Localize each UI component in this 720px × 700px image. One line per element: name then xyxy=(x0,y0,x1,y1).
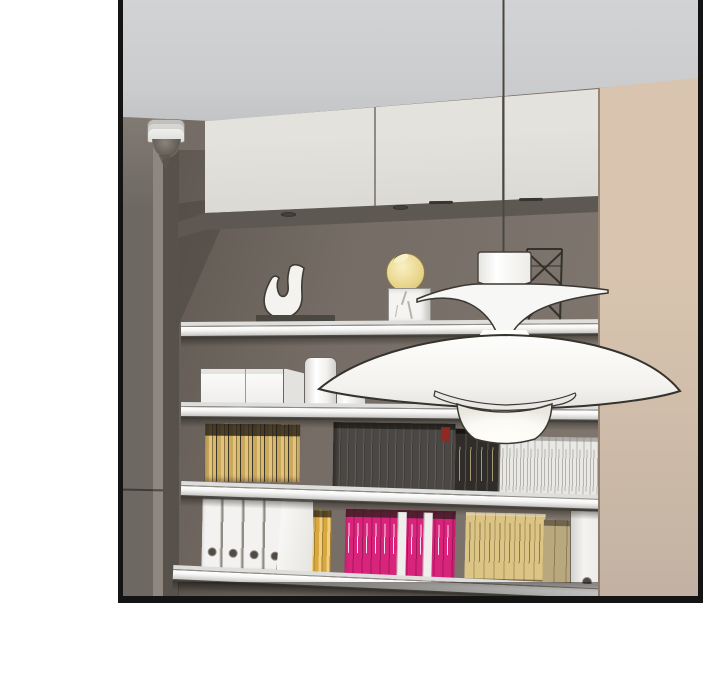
marble-vein xyxy=(401,291,407,305)
box-divider xyxy=(245,369,246,404)
left-wall-panel xyxy=(123,100,153,596)
spine-text xyxy=(465,522,546,564)
marble-cube xyxy=(388,288,431,324)
marble-vein xyxy=(395,305,398,317)
cabinet-handle xyxy=(519,198,543,201)
shelf-1 xyxy=(181,319,600,339)
white-canister xyxy=(304,357,337,405)
recessed-light xyxy=(393,205,408,210)
cabinet-door-seam xyxy=(502,96,504,202)
binder-hole xyxy=(229,549,238,558)
spine-text xyxy=(455,447,500,482)
binder-hole xyxy=(250,550,259,559)
binder-hole xyxy=(208,547,217,556)
beige-side-panel xyxy=(598,0,698,596)
comic-panel-image[interactable] xyxy=(118,0,703,603)
webtoon-page xyxy=(0,0,720,700)
marble-vein xyxy=(407,301,412,319)
white-spine xyxy=(422,513,433,586)
floor-shadow xyxy=(178,582,598,596)
spine-text xyxy=(500,448,601,492)
camera-shadow xyxy=(157,155,173,171)
left-wall-edge-highlight xyxy=(153,104,163,596)
cabinet-door-seam xyxy=(374,106,376,207)
recessed-light xyxy=(281,212,296,217)
shelf-2 xyxy=(181,402,600,423)
white-spine xyxy=(396,512,407,585)
cabinet-handle xyxy=(429,201,453,204)
left-wall-reveal xyxy=(163,108,179,596)
books-gold-thin xyxy=(205,424,301,483)
storage-box xyxy=(200,368,286,405)
security-camera xyxy=(143,115,188,173)
